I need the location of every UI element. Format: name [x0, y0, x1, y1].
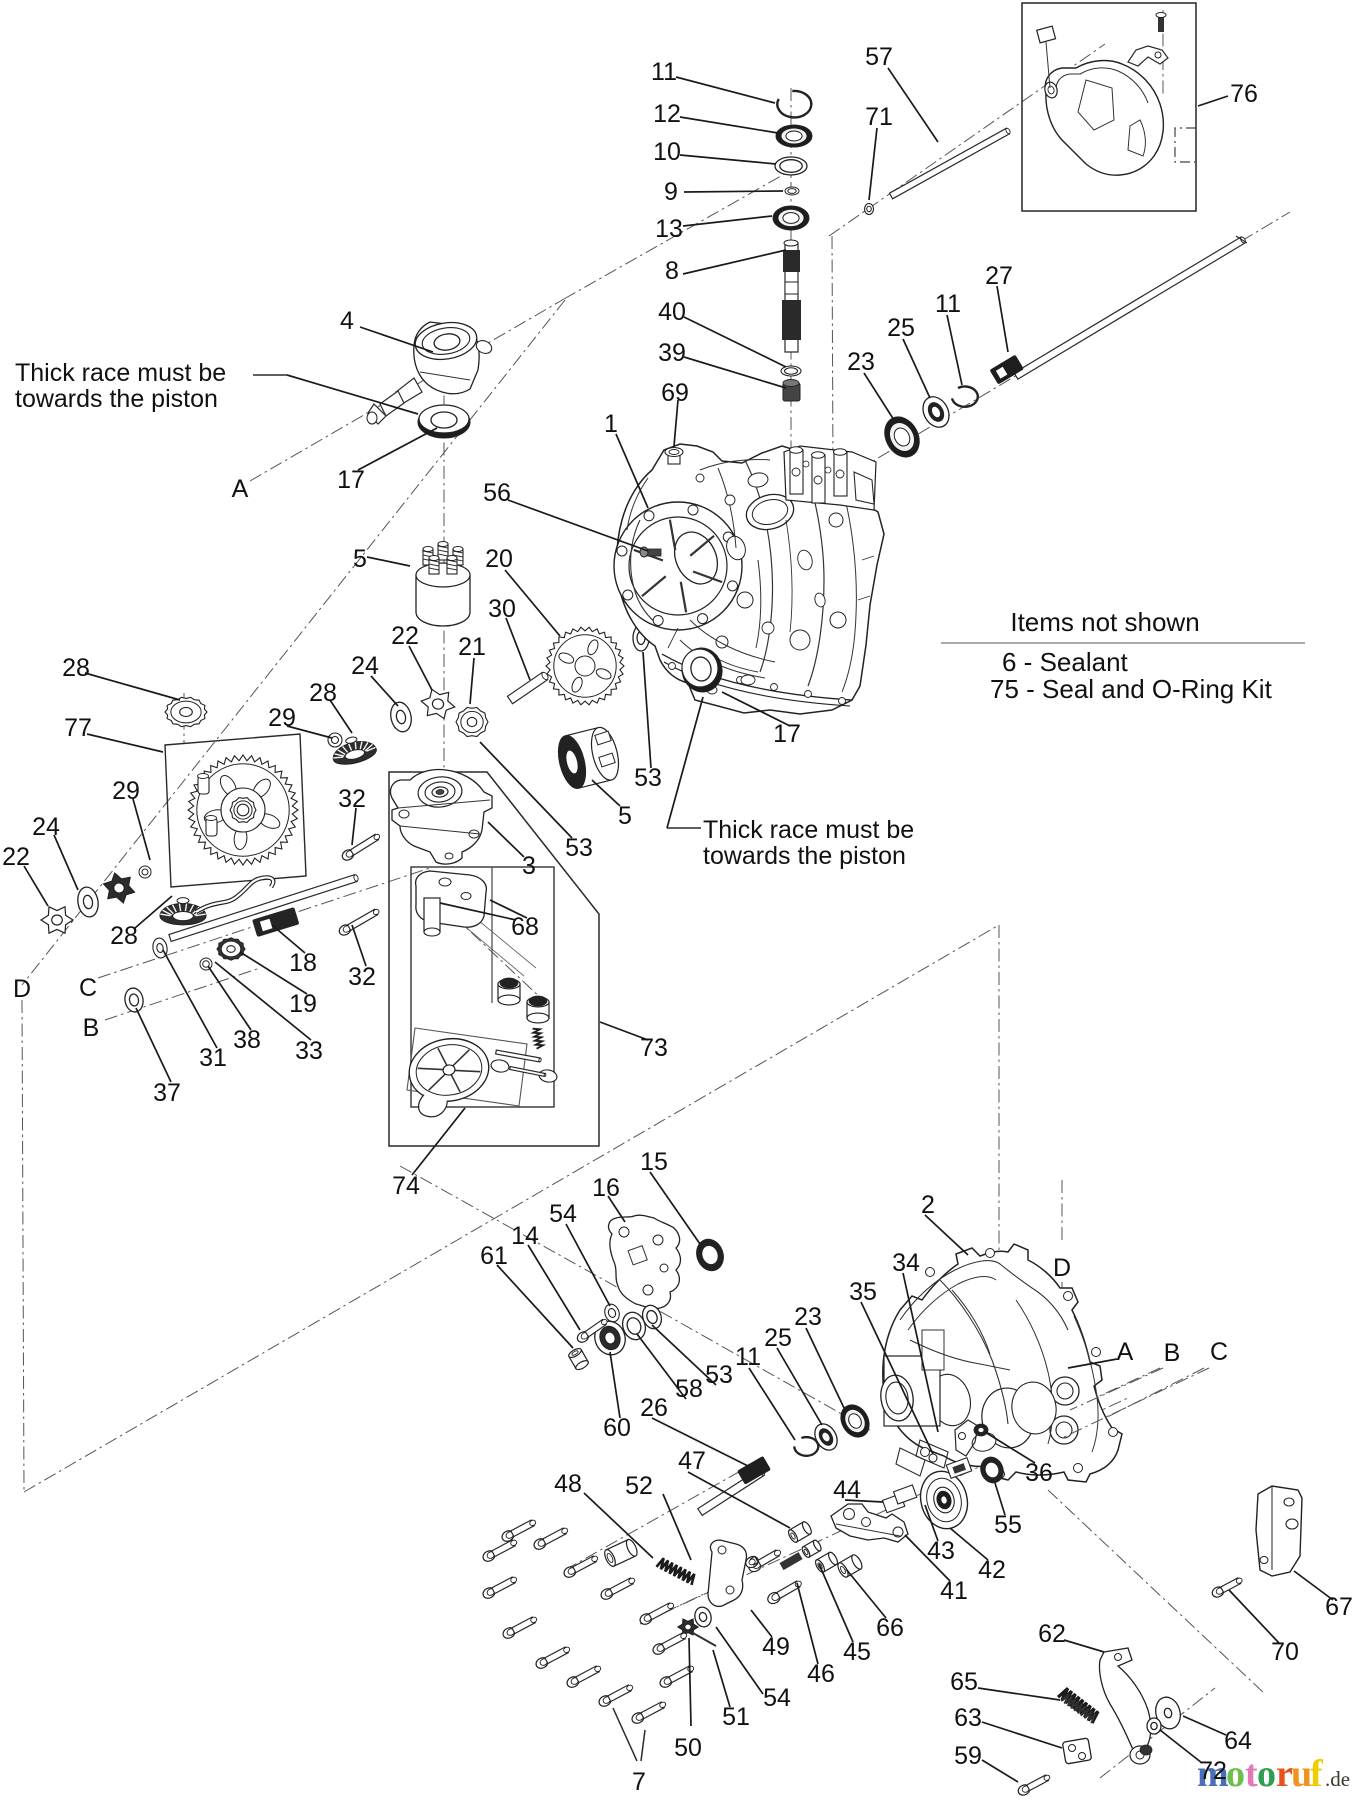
svg-text:63: 63 — [954, 1704, 982, 1732]
svg-text:75 - Seal and O-Ring Kit: 75 - Seal and O-Ring Kit — [990, 674, 1273, 704]
svg-text:64: 64 — [1224, 1727, 1252, 1755]
svg-text:30: 30 — [488, 595, 516, 623]
svg-text:59: 59 — [954, 1742, 982, 1770]
svg-text:22: 22 — [2, 843, 30, 871]
svg-text:36: 36 — [1025, 1459, 1053, 1487]
svg-text:77: 77 — [64, 714, 92, 742]
svg-text:19: 19 — [289, 990, 317, 1018]
svg-text:69: 69 — [661, 379, 689, 407]
svg-text:54: 54 — [549, 1200, 577, 1228]
svg-text:o: o — [1257, 1753, 1276, 1795]
svg-text:31: 31 — [199, 1044, 227, 1072]
svg-text:46: 46 — [807, 1660, 835, 1688]
svg-text:27: 27 — [985, 262, 1013, 290]
svg-text:f: f — [1310, 1753, 1324, 1795]
svg-text:Items not shown: Items not shown — [1010, 607, 1199, 637]
svg-text:55: 55 — [994, 1511, 1022, 1539]
svg-text:13: 13 — [655, 215, 683, 243]
svg-text:D: D — [13, 975, 31, 1003]
svg-text:A: A — [1117, 1338, 1134, 1366]
svg-text:73: 73 — [640, 1034, 668, 1062]
svg-text:25: 25 — [887, 314, 915, 342]
svg-text:34: 34 — [892, 1249, 920, 1277]
svg-text:3: 3 — [522, 852, 536, 880]
svg-text:o: o — [1226, 1753, 1245, 1795]
svg-text:25: 25 — [764, 1324, 792, 1352]
svg-text:45: 45 — [843, 1638, 871, 1666]
svg-text:67: 67 — [1325, 1593, 1353, 1621]
svg-text:71: 71 — [865, 103, 893, 131]
svg-text:41: 41 — [940, 1577, 968, 1605]
svg-text:40: 40 — [658, 298, 686, 326]
svg-text:61: 61 — [480, 1242, 508, 1270]
svg-text:u: u — [1291, 1753, 1312, 1795]
svg-text:5: 5 — [618, 802, 632, 830]
svg-text:1: 1 — [604, 410, 618, 438]
svg-text:24: 24 — [351, 652, 379, 680]
svg-text:9: 9 — [664, 178, 678, 206]
svg-text:32: 32 — [338, 785, 366, 813]
svg-text:17: 17 — [337, 466, 365, 494]
svg-text:54: 54 — [763, 1684, 791, 1712]
svg-text:B: B — [1164, 1339, 1181, 1367]
svg-text:10: 10 — [653, 138, 681, 166]
svg-text:47: 47 — [678, 1447, 706, 1475]
svg-text:60: 60 — [603, 1414, 631, 1442]
svg-text:7: 7 — [632, 1768, 646, 1796]
svg-text:2: 2 — [921, 1191, 935, 1219]
svg-text:49: 49 — [762, 1633, 790, 1661]
svg-text:58: 58 — [675, 1375, 703, 1403]
svg-text:28: 28 — [62, 654, 90, 682]
svg-text:20: 20 — [485, 545, 513, 573]
svg-text:11: 11 — [735, 1343, 761, 1371]
svg-text:21: 21 — [458, 633, 486, 661]
svg-text:28: 28 — [110, 922, 138, 950]
svg-text:32: 32 — [348, 963, 376, 991]
svg-text:16: 16 — [592, 1174, 620, 1202]
svg-text:23: 23 — [847, 348, 875, 376]
svg-text:22: 22 — [391, 622, 419, 650]
svg-text:26: 26 — [640, 1394, 668, 1422]
svg-text:43: 43 — [927, 1537, 955, 1565]
svg-text:29: 29 — [112, 777, 140, 805]
svg-text:56: 56 — [483, 479, 511, 507]
svg-text:44: 44 — [833, 1476, 861, 1504]
svg-text:B: B — [83, 1014, 100, 1042]
svg-text:4: 4 — [340, 307, 354, 335]
svg-text:57: 57 — [865, 43, 893, 71]
svg-text:C: C — [1210, 1338, 1228, 1366]
svg-text:23: 23 — [794, 1303, 822, 1331]
svg-text:52: 52 — [625, 1472, 653, 1500]
svg-text:53: 53 — [634, 764, 662, 792]
svg-text:51: 51 — [722, 1703, 750, 1731]
svg-text:39: 39 — [658, 339, 686, 367]
svg-text:Thick race must be: Thick race must be — [703, 816, 914, 844]
svg-text:5: 5 — [353, 545, 367, 573]
svg-text:72: 72 — [1199, 1757, 1227, 1785]
svg-text:50: 50 — [674, 1734, 702, 1762]
svg-text:48: 48 — [554, 1470, 582, 1498]
svg-text:15: 15 — [640, 1148, 668, 1176]
svg-text:33: 33 — [295, 1037, 323, 1065]
svg-text:24: 24 — [32, 813, 60, 841]
svg-text:68: 68 — [511, 913, 539, 941]
svg-text:62: 62 — [1038, 1620, 1066, 1648]
svg-text:28: 28 — [309, 679, 337, 707]
svg-text:11: 11 — [935, 290, 961, 318]
svg-text:29: 29 — [268, 704, 296, 732]
svg-text:42: 42 — [978, 1556, 1006, 1584]
svg-text:towards the piston: towards the piston — [15, 385, 218, 413]
svg-text:53: 53 — [565, 834, 593, 862]
svg-text:76: 76 — [1230, 80, 1258, 108]
svg-text:C: C — [79, 974, 97, 1002]
svg-text:D: D — [1053, 1254, 1071, 1282]
svg-text:65: 65 — [950, 1668, 978, 1696]
svg-text:11: 11 — [651, 58, 677, 86]
svg-text:8: 8 — [665, 257, 679, 285]
svg-text:35: 35 — [849, 1278, 877, 1306]
svg-text:Thick race must be: Thick race must be — [15, 359, 226, 387]
svg-text:6 - Sealant: 6 - Sealant — [1002, 647, 1129, 677]
svg-text:14: 14 — [511, 1222, 539, 1250]
svg-text:A: A — [232, 475, 249, 503]
svg-text:38: 38 — [233, 1026, 261, 1054]
svg-text:17: 17 — [773, 720, 801, 748]
svg-text:.de: .de — [1325, 1767, 1350, 1791]
svg-text:74: 74 — [392, 1172, 420, 1200]
svg-text:18: 18 — [289, 949, 317, 977]
svg-text:12: 12 — [653, 100, 681, 128]
svg-text:70: 70 — [1271, 1638, 1299, 1666]
svg-text:53: 53 — [705, 1361, 733, 1389]
svg-text:37: 37 — [153, 1079, 181, 1107]
svg-text:66: 66 — [876, 1614, 904, 1642]
svg-text:towards the piston: towards the piston — [703, 842, 906, 870]
